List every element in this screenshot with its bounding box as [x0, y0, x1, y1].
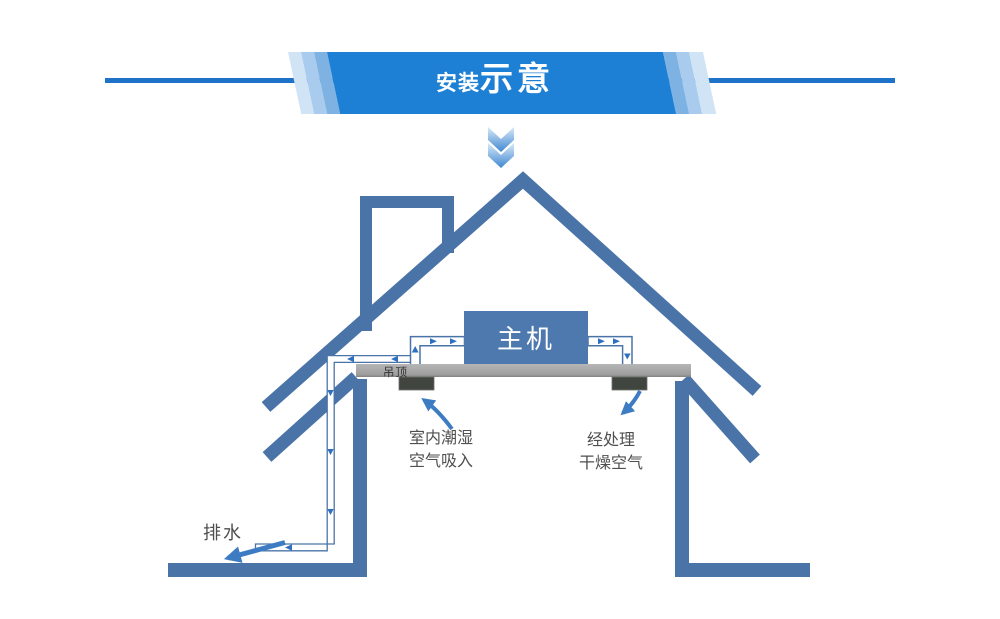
intake-note: 室内潮湿 空气吸入: [401, 426, 481, 472]
right-wall-floor: [682, 381, 810, 570]
outlet-vent: [612, 377, 647, 390]
ceiling-label: 吊顶: [383, 364, 408, 380]
outlet-annotation-arrow: [623, 391, 640, 413]
outlet-note-line2: 干燥空气: [571, 451, 651, 474]
house-diagram-svg: [0, 0, 1000, 619]
intake-note-line1: 室内潮湿: [401, 426, 481, 449]
outlet-note: 经处理 干燥空气: [571, 428, 651, 474]
main-unit-label: 主机: [464, 311, 588, 364]
right-eave-stub: [684, 379, 755, 459]
outlet-duct: [588, 337, 632, 368]
outlet-note-line1: 经处理: [571, 428, 651, 451]
drain-label: 排水: [203, 519, 243, 545]
installation-diagram-page: 安装 示意: [0, 0, 1000, 619]
intake-note-line2: 空气吸入: [401, 449, 481, 472]
intake-annotation-arrow: [424, 400, 452, 429]
annotation-arrows: [228, 391, 640, 558]
